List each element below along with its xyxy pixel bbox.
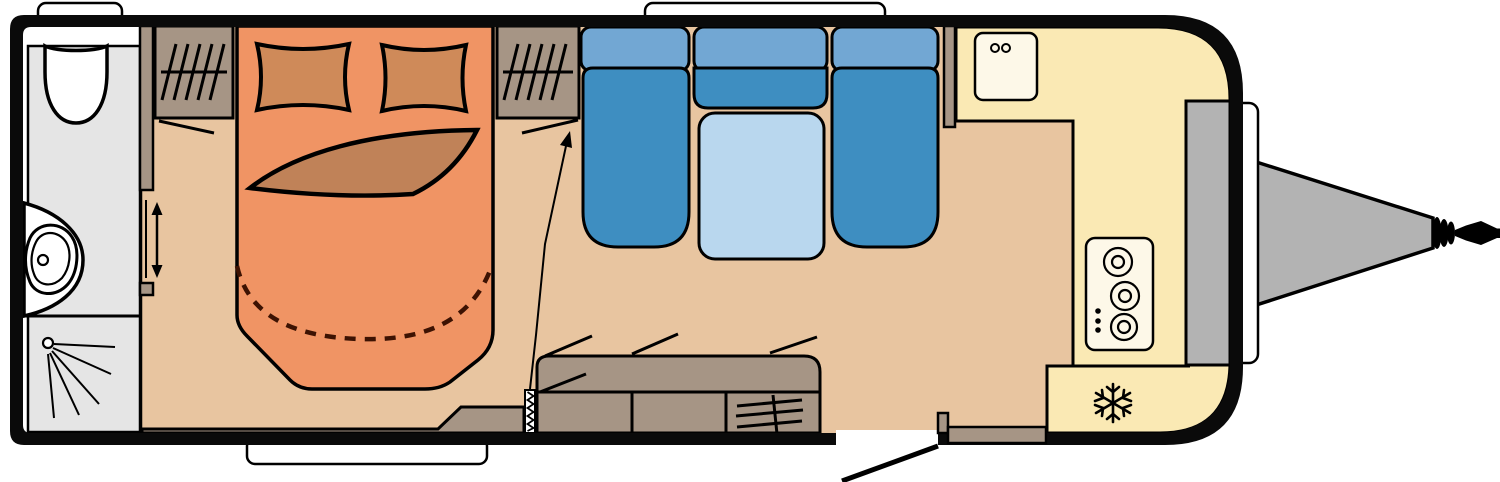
washroom-partition-stub (140, 283, 153, 295)
pillow-left (257, 44, 349, 110)
washroom (23, 26, 163, 433)
entry-step (948, 427, 1046, 443)
sideboard-top (537, 356, 820, 392)
bench-middle (694, 68, 827, 108)
drawbar-frame (1250, 160, 1433, 307)
kitchen-partition-wall (944, 26, 955, 127)
shower-head (43, 338, 53, 348)
fold-partition-door (525, 390, 535, 433)
wardrobe-right (497, 26, 579, 133)
hitch-handle (1455, 221, 1500, 245)
backrest-middle (694, 27, 827, 71)
seat-left (583, 68, 689, 247)
seat-right (832, 68, 938, 247)
hob-knob-icon (1095, 327, 1101, 333)
door-opening (836, 430, 938, 447)
door-swing-line (842, 446, 938, 481)
pillow-right (382, 45, 466, 111)
washbasin-drain (38, 255, 48, 265)
hitch-coupling (1447, 222, 1455, 245)
washroom-partition-wall (140, 26, 153, 190)
hob-knob-icon (1095, 318, 1101, 324)
lounge (581, 27, 938, 259)
floorplan-svg (0, 0, 1500, 482)
floorplan (0, 0, 1500, 482)
backrest-right (832, 27, 938, 71)
drawbar (1250, 160, 1500, 307)
backrest-left (581, 27, 689, 71)
toilet (45, 46, 107, 123)
hob (1086, 238, 1153, 350)
door-post (938, 413, 948, 433)
wardrobe-left (155, 26, 233, 133)
table (699, 113, 824, 259)
gas-locker (1186, 101, 1230, 365)
hob-knob-icon (1095, 308, 1101, 314)
